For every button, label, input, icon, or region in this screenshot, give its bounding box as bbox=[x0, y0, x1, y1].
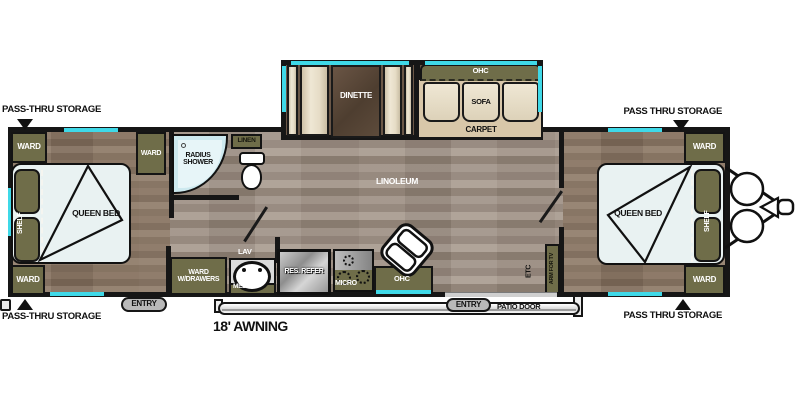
window-accent bbox=[282, 66, 286, 112]
sofa-ohc-label: OHC bbox=[420, 67, 541, 75]
window-accent bbox=[64, 128, 118, 132]
res-refer-label: RES. REFER bbox=[284, 268, 323, 275]
arrow-up-icon bbox=[17, 299, 33, 310]
linen-cabinet: LINEN bbox=[231, 134, 262, 149]
ward-cabinet: WARD bbox=[136, 132, 166, 175]
arrow-up-icon bbox=[675, 299, 691, 310]
ward-w-drawers-cabinet: WARD W/DRAWERS bbox=[170, 257, 227, 295]
pass-thru-label: PASS-THRU STORAGE bbox=[2, 105, 101, 115]
hitch-icon bbox=[725, 160, 797, 256]
window-accent bbox=[425, 61, 537, 65]
rv-floorplan: DINETTE OHC SOFA CARPET WARD WARD WARD S… bbox=[0, 0, 800, 400]
sofa-cushion bbox=[502, 82, 539, 122]
window-accent bbox=[50, 292, 104, 296]
entry-door-rear: ENTRY bbox=[446, 298, 491, 312]
window-accent bbox=[291, 61, 409, 65]
ward-cabinet: WARD bbox=[684, 265, 725, 295]
entry-label: ENTRY bbox=[456, 301, 481, 309]
med-label: MED bbox=[233, 284, 247, 291]
ward-cabinet: WARD bbox=[684, 132, 725, 163]
window-accent bbox=[608, 292, 662, 296]
window-accent bbox=[376, 290, 431, 294]
tv-arm-cabinet: ARM FOR TV bbox=[545, 244, 560, 294]
dinette-bench bbox=[383, 65, 402, 136]
pass-thru-label: PASS THRU STORAGE bbox=[572, 311, 722, 321]
dinette-bench bbox=[404, 65, 413, 136]
ward-label: WARD bbox=[16, 276, 39, 284]
ward-label: WARD bbox=[693, 276, 716, 284]
dinette-table bbox=[331, 65, 381, 138]
window-accent bbox=[608, 128, 662, 132]
etc-label: ETC bbox=[523, 256, 535, 286]
shower-drain-icon bbox=[181, 143, 186, 148]
linoleum-label: LINOLEUM bbox=[376, 177, 418, 186]
dinette-bench bbox=[287, 65, 298, 136]
bath-wall bbox=[169, 195, 239, 200]
ward-w-drawers-label: WARD W/DRAWERS bbox=[174, 269, 224, 284]
lav-label: LAV bbox=[238, 248, 252, 256]
toilet-icon bbox=[239, 152, 267, 192]
stabilizer-jack bbox=[0, 299, 11, 311]
shelf-label: SHELF bbox=[701, 198, 714, 244]
pass-thru-label: PASS THRU STORAGE bbox=[572, 107, 722, 117]
ward-label: WARD bbox=[693, 143, 716, 151]
refrigerator: RES. REFER bbox=[277, 249, 331, 295]
ward-cabinet: WARD bbox=[11, 132, 47, 163]
kitchen-ohc-label: OHC bbox=[394, 275, 410, 283]
entry-label: ENTRY bbox=[131, 300, 156, 308]
queen-bed-label: QUEEN BED bbox=[610, 209, 666, 218]
ward-label: WARD bbox=[17, 143, 40, 151]
entry-door-front: ENTRY bbox=[121, 297, 167, 312]
ward-cabinet: WARD bbox=[11, 265, 45, 295]
micro-label: MICRO bbox=[335, 280, 357, 287]
radius-shower-label: RADIUS SHOWER bbox=[172, 152, 224, 167]
bedroom-right-wall bbox=[559, 132, 564, 188]
sofa-label: SOFA bbox=[462, 98, 500, 106]
arrow-down-icon bbox=[673, 120, 689, 131]
patio-door-label: PATIO DOOR bbox=[497, 303, 540, 311]
pass-thru-label: PASS-THRU STORAGE bbox=[2, 312, 101, 322]
sofa-cushion bbox=[423, 82, 460, 122]
queen-bed-label: QUEEN BED bbox=[68, 209, 124, 218]
ward-label: WARD bbox=[141, 150, 161, 157]
patio-door-opening bbox=[445, 292, 557, 297]
linen-label: LINEN bbox=[237, 138, 255, 145]
burner-icon bbox=[343, 255, 354, 266]
shelf-label: SHELF bbox=[14, 200, 27, 246]
dinette-bench bbox=[300, 65, 329, 136]
carpet-label: CARPET bbox=[421, 126, 541, 134]
arrow-down-icon bbox=[17, 119, 33, 130]
dinette-label: DINETTE bbox=[329, 92, 383, 100]
window-accent bbox=[538, 66, 542, 112]
arm-for-tv-label: ARM FOR TV bbox=[550, 253, 556, 284]
burner-icon bbox=[356, 270, 370, 284]
kitchen-sink-icon bbox=[374, 218, 440, 282]
awning-label: 18' AWNING bbox=[213, 319, 288, 334]
